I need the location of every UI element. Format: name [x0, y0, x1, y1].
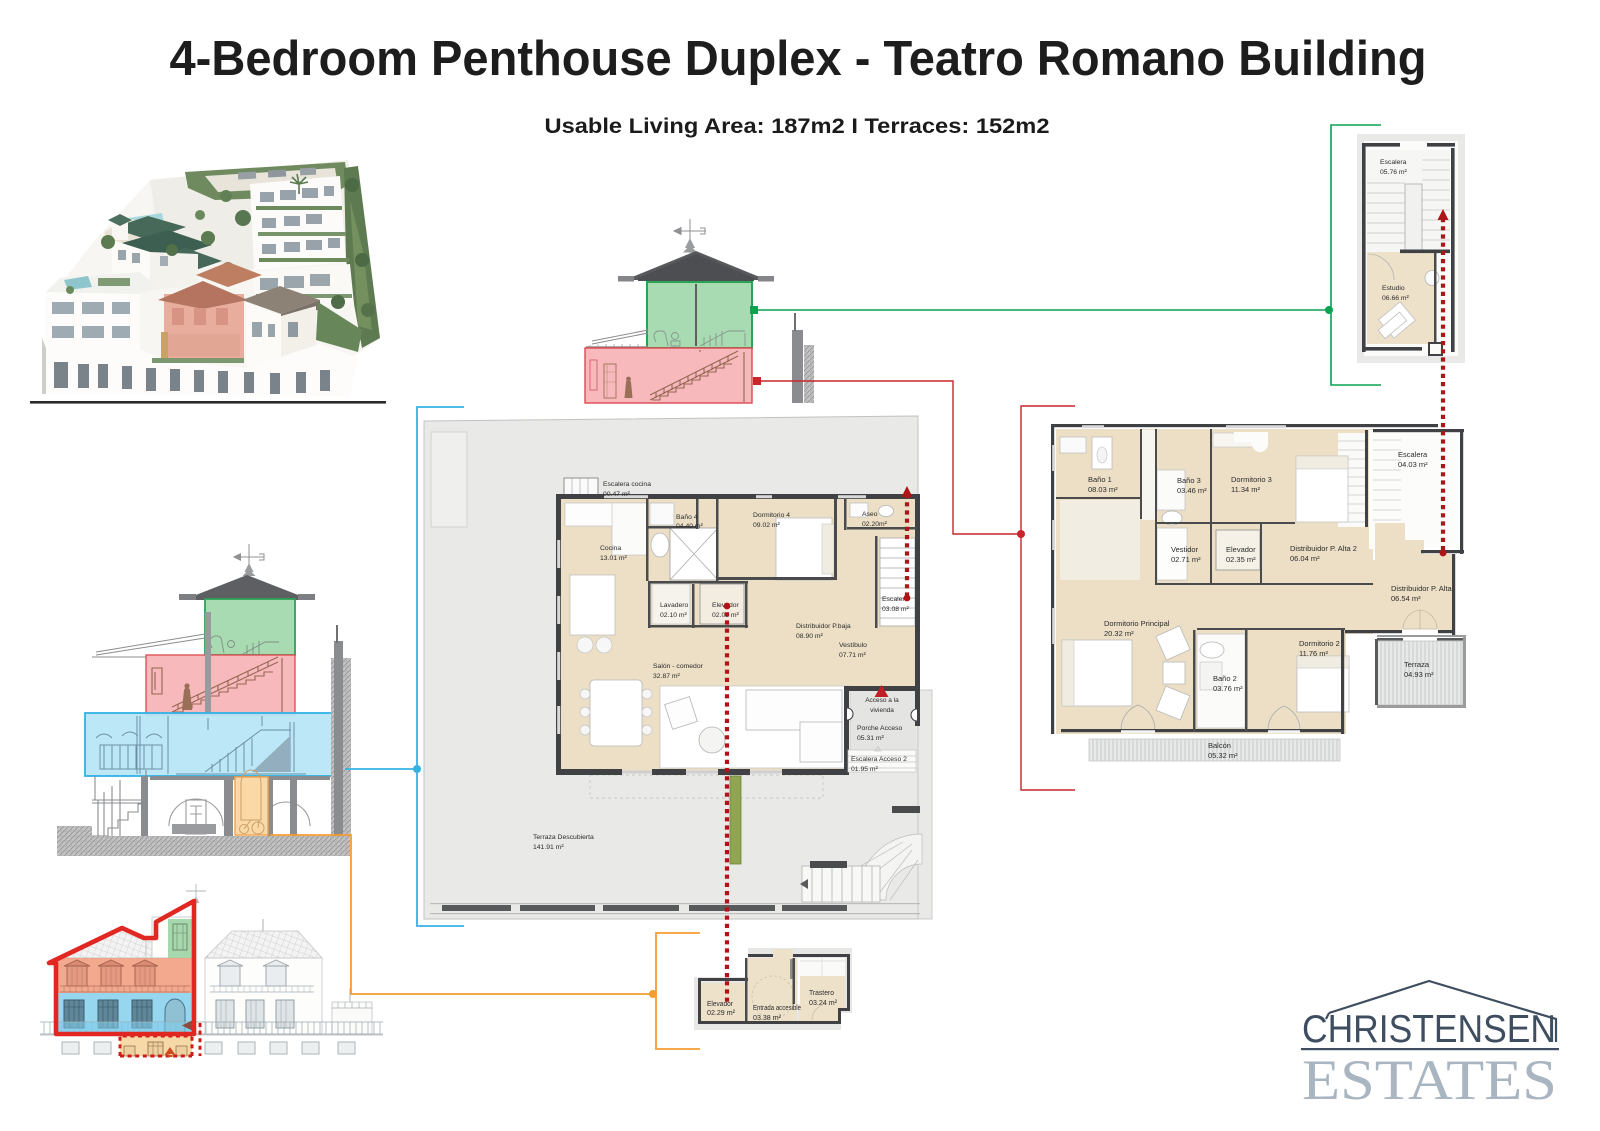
svg-text:07.71 m²: 07.71 m²: [839, 652, 867, 659]
svg-text:Baño 3: Baño 3: [1177, 476, 1201, 485]
svg-text:Vestíbulo: Vestíbulo: [839, 642, 867, 649]
svg-text:02.10 m²: 02.10 m²: [660, 612, 688, 619]
svg-text:02.35 m²: 02.35 m²: [1226, 555, 1256, 564]
svg-text:03.46 m²: 03.46 m²: [1177, 486, 1207, 495]
svg-text:01.95 m²: 01.95 m²: [851, 766, 879, 773]
svg-text:Baño 1: Baño 1: [1088, 475, 1112, 484]
svg-text:Aseo: Aseo: [862, 511, 878, 518]
svg-text:02.20m²: 02.20m²: [862, 521, 888, 528]
svg-text:04.40 m²: 04.40 m²: [676, 523, 704, 530]
svg-text:Distribuidor P. Alta: Distribuidor P. Alta: [1391, 584, 1453, 593]
svg-text:02.71 m²: 02.71 m²: [1171, 555, 1201, 564]
svg-text:Vestidor: Vestidor: [1171, 545, 1199, 554]
svg-text:Escalera Acceso 2: Escalera Acceso 2: [851, 756, 907, 763]
svg-text:ESTATES: ESTATES: [1302, 1049, 1557, 1112]
svg-text:Usable Living Area: 187m2 I Te: Usable Living Area: 187m2 I Terraces: 15…: [545, 115, 1050, 138]
svg-text:141.91 m²: 141.91 m²: [533, 844, 564, 851]
svg-text:vivienda: vivienda: [870, 707, 894, 714]
svg-text:Elevador: Elevador: [1226, 545, 1256, 554]
svg-text:03.24 m²: 03.24 m²: [809, 998, 837, 1007]
svg-text:09.02 m²: 09.02 m²: [753, 522, 781, 529]
svg-text:Salón - comedor: Salón - comedor: [653, 663, 704, 670]
svg-text:11.34 m²: 11.34 m²: [1231, 485, 1261, 494]
svg-text:Cocina: Cocina: [600, 545, 621, 552]
svg-text:Lavadero: Lavadero: [660, 602, 689, 609]
svg-text:Terraza: Terraza: [1404, 660, 1430, 669]
svg-text:Balcón: Balcón: [1208, 741, 1231, 750]
svg-text:Baño 4: Baño 4: [676, 514, 698, 521]
svg-text:Estudio: Estudio: [1382, 285, 1405, 292]
svg-text:02.29 m²: 02.29 m²: [707, 1008, 735, 1017]
svg-text:Escalera: Escalera: [1398, 450, 1428, 459]
svg-text:11.76 m²: 11.76 m²: [1299, 649, 1329, 658]
svg-text:Baño 2: Baño 2: [1213, 674, 1237, 683]
svg-text:00.47 m²: 00.47 m²: [603, 491, 631, 498]
svg-text:Dormitorio 3: Dormitorio 3: [1231, 475, 1272, 484]
svg-text:Distribuidor P.baja: Distribuidor P.baja: [796, 623, 851, 630]
svg-text:Acceso a la: Acceso a la: [865, 697, 899, 704]
svg-text:20.32 m²: 20.32 m²: [1104, 629, 1134, 638]
svg-text:Distribuidor P. Alta 2: Distribuidor P. Alta 2: [1290, 544, 1357, 553]
svg-text:Escalera: Escalera: [1380, 159, 1407, 166]
svg-text:Terraza Descubierta: Terraza Descubierta: [533, 834, 594, 841]
svg-text:03.76 m²: 03.76 m²: [1213, 684, 1243, 693]
svg-text:Porche Acceso: Porche Acceso: [857, 725, 903, 732]
svg-text:03.08 m²: 03.08 m²: [882, 606, 910, 613]
svg-text:Trastero: Trastero: [809, 988, 834, 997]
svg-text:Dormitorio Principal: Dormitorio Principal: [1104, 619, 1170, 628]
svg-text:04.93 m²: 04.93 m²: [1404, 670, 1434, 679]
svg-text:Dormitorio 2: Dormitorio 2: [1299, 639, 1340, 648]
svg-text:08.90 m²: 08.90 m²: [796, 633, 824, 640]
svg-text:13.01 m²: 13.01 m²: [600, 555, 628, 562]
svg-text:Entrada accesible: Entrada accesible: [753, 1003, 801, 1012]
svg-text:03.38 m²: 03.38 m²: [753, 1013, 781, 1022]
svg-text:05.32 m²: 05.32 m²: [1208, 751, 1238, 760]
svg-text:08.03 m²: 08.03 m²: [1088, 485, 1118, 494]
svg-text:06.54 m²: 06.54 m²: [1391, 594, 1421, 603]
svg-text:05.76 m²: 05.76 m²: [1380, 169, 1408, 176]
svg-text:04.03 m²: 04.03 m²: [1398, 460, 1428, 469]
svg-text:CHRISTENSEN: CHRISTENSEN: [1302, 1008, 1556, 1051]
svg-text:4-Bedroom Penthouse Duplex - T: 4-Bedroom Penthouse Duplex - Teatro Roma…: [170, 32, 1427, 86]
svg-text:Elevador: Elevador: [707, 999, 733, 1008]
svg-text:32.87 m²: 32.87 m²: [653, 673, 681, 680]
svg-text:Dormitorio 4: Dormitorio 4: [753, 512, 790, 519]
svg-text:06.04 m²: 06.04 m²: [1290, 554, 1320, 563]
svg-text:05.31 m²: 05.31 m²: [857, 735, 885, 742]
svg-text:06.66 m²: 06.66 m²: [1382, 295, 1410, 302]
svg-text:Escalera cocina: Escalera cocina: [603, 481, 651, 488]
